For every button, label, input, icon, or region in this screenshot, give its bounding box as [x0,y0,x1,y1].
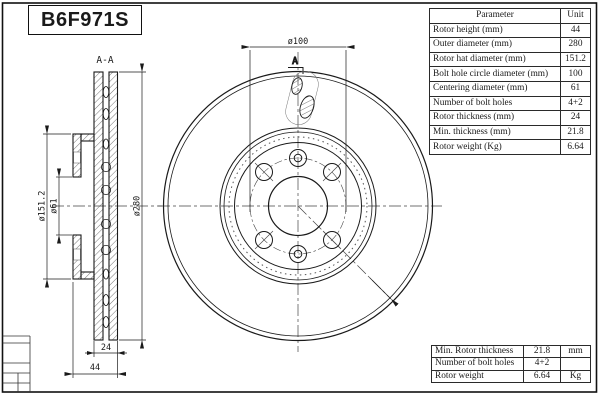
radius-pointer [370,278,391,299]
revision-grid [3,336,31,392]
param-label: Number of bolt holes [430,96,561,111]
param-label: Rotor height (mm) [430,23,561,38]
part-number: B6F971S [41,9,129,32]
table-row: Rotor weight6.64Kg [432,370,591,382]
table-row: Bolt hole circle diameter (mm)100 [430,67,591,82]
param-label: Rotor thickness (mm) [430,111,561,126]
part-number-box: B6F971S [28,5,142,35]
param-label: Bolt hole circle diameter (mm) [430,67,561,82]
summary-unit [561,358,591,370]
table-row: Centering diameter (mm)61 [430,81,591,96]
summary-unit: mm [561,346,591,358]
header-unit: Unit [561,9,591,24]
table-row: Rotor hat diameter (mm)151.2 [430,52,591,67]
svg-text:44: 44 [90,363,100,373]
param-value: 4+2 [561,96,591,111]
header-parameter: Parameter [430,9,561,24]
summary-value: 6.64 [524,370,561,382]
svg-text:ø100: ø100 [288,37,308,47]
parameter-table: Parameter Unit Rotor height (mm)44 Outer… [429,8,591,155]
table-row: Number of bolt holes4+2 [430,96,591,111]
summary-value: 4+2 [524,358,561,370]
param-label: Rotor weight (Kg) [430,140,561,155]
summary-label: Number of bolt holes [432,358,524,370]
param-value: 100 [561,67,591,82]
param-value: 280 [561,38,591,53]
param-label: Outer diameter (mm) [430,38,561,53]
param-value: 44 [561,23,591,38]
front-view: A [158,52,442,352]
table-row: Min. thickness (mm)21.8 [430,125,591,140]
summary-label: Min. Rotor thickness [432,346,524,358]
front-centerlines [158,52,442,352]
svg-text:ø280: ø280 [133,196,143,216]
param-value: 6.64 [561,140,591,155]
param-value: 24 [561,111,591,126]
table-row: Number of bolt holes4+2 [432,358,591,370]
param-label: Rotor hat diameter (mm) [430,52,561,67]
summary-value: 21.8 [524,346,561,358]
section-view-label: A-A [96,55,113,66]
table-row: Rotor height (mm)44 [430,23,591,38]
param-value: 61 [561,81,591,96]
param-value: 151.2 [561,52,591,67]
svg-text:ø61: ø61 [50,198,60,213]
section-cut-marks: A [283,56,321,127]
param-label: Min. thickness (mm) [430,125,561,140]
cut-arrow-label: A [292,56,298,67]
table-row: Min. Rotor thickness21.8mm [432,346,591,358]
table-row: Outer diameter (mm)280 [430,38,591,53]
summary-label: Rotor weight [432,370,524,382]
parameter-table-header: Parameter Unit [430,9,591,24]
param-label: Centering diameter (mm) [430,81,561,96]
section-view: A-A [52,55,162,340]
table-row: Rotor weight (Kg)6.64 [430,140,591,155]
svg-text:ø151.2: ø151.2 [38,191,48,222]
svg-text:24: 24 [101,343,111,353]
table-row: Rotor thickness (mm)24 [430,111,591,126]
drawing-sheet: A-A [0,0,600,400]
summary-unit: Kg [561,370,591,382]
param-value: 21.8 [561,125,591,140]
summary-table: Min. Rotor thickness21.8mm Number of bol… [431,345,591,383]
